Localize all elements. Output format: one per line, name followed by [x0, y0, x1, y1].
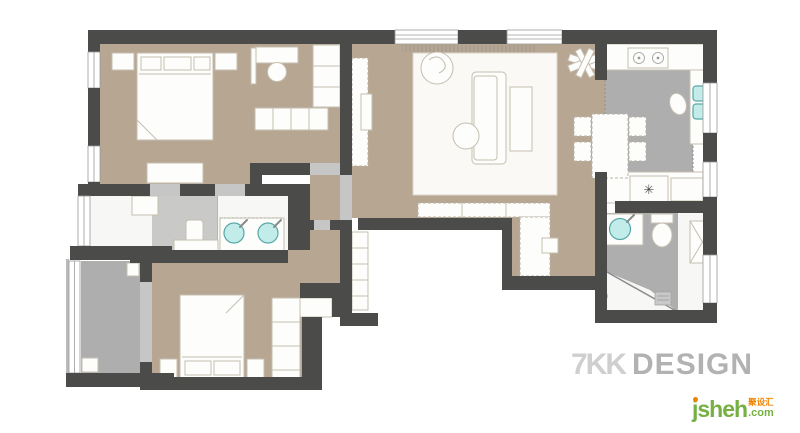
balcony-door-window — [140, 282, 152, 362]
watermark-word: DESIGN — [632, 348, 753, 381]
desk-chair — [268, 63, 287, 82]
wall-segment — [302, 317, 322, 377]
wall-segment — [595, 172, 607, 212]
wardrobe2-column — [272, 298, 300, 388]
wall-segment — [66, 373, 174, 387]
wall-segment — [250, 163, 262, 184]
balcony-floor — [81, 261, 140, 373]
wall-segment — [70, 246, 172, 260]
dresser — [147, 163, 203, 183]
door-opening — [215, 184, 245, 196]
wall-segment — [595, 212, 607, 310]
nightstand — [247, 359, 264, 378]
wall-segment — [288, 184, 310, 250]
wardrobe1-column — [313, 45, 340, 107]
curtain-hatch — [402, 45, 536, 52]
toilet-tank — [651, 214, 673, 223]
bed2-pillow — [214, 361, 240, 375]
door-opening — [310, 163, 340, 175]
study-desk — [174, 240, 218, 251]
wall-segment — [615, 201, 717, 213]
wall-segment — [358, 218, 512, 230]
burner-dot — [657, 57, 660, 60]
bath-mat — [655, 292, 671, 305]
balcony-corner-box — [127, 263, 139, 276]
wall-segment — [340, 220, 352, 230]
appliance-box — [671, 178, 703, 201]
burner-dot — [638, 57, 641, 60]
wall-segment — [703, 133, 717, 162]
wall-segment — [340, 163, 352, 175]
nightstand — [215, 53, 237, 70]
dining-chair — [574, 142, 591, 161]
wall-segment — [458, 30, 507, 44]
wall-segment — [502, 276, 602, 290]
wall-segment — [595, 310, 717, 323]
site-logo-cjk: 聚设汇 — [748, 398, 774, 407]
wall-segment — [310, 220, 314, 230]
wall-segment — [88, 88, 100, 146]
balcony-corner-box — [82, 358, 98, 372]
window — [507, 30, 562, 44]
toilet-bowl — [652, 223, 672, 247]
sofa-side-table — [510, 87, 532, 151]
site-logo-tld: .com — [748, 408, 774, 419]
watermark-brand: 7KK — [571, 348, 625, 381]
dining-chair — [629, 117, 646, 136]
door-opening — [340, 175, 352, 220]
bed1-pillow — [141, 57, 161, 70]
wardrobe2-top — [300, 298, 332, 317]
sectional-sofa-top — [418, 203, 550, 217]
wall-segment — [78, 184, 90, 196]
wall-segment — [300, 283, 351, 298]
wall-segment — [703, 30, 717, 83]
desk — [255, 47, 298, 63]
wall-segment — [330, 220, 340, 230]
bed1-pillow — [194, 57, 210, 70]
coffee-table — [453, 123, 479, 149]
closet-shelves — [352, 232, 368, 310]
wall-segment — [245, 184, 288, 196]
washing-machine-icon: ✳ — [644, 183, 655, 198]
radiator — [251, 48, 256, 84]
wall-segment — [603, 30, 717, 44]
wall-segment — [88, 30, 100, 52]
wall-segment — [180, 184, 215, 196]
nightstand — [112, 53, 134, 70]
bed2-pillow — [185, 361, 211, 375]
door-opening — [314, 220, 330, 230]
logo-dot-icon — [693, 397, 698, 402]
dining-chair — [574, 117, 591, 136]
site-logo-text: jsheh — [692, 396, 747, 422]
floor-plan-image: ✳ — [0, 0, 800, 433]
dining-table — [592, 114, 628, 178]
vanity-bathroom — [220, 218, 284, 252]
site-logo-name: jsheh — [692, 398, 747, 421]
stove — [628, 48, 668, 68]
balcony-outer-rail — [66, 259, 69, 375]
wall-segment — [340, 32, 352, 163]
study-cabinet — [132, 196, 158, 215]
wall-segment — [595, 32, 607, 80]
site-logo-right: 聚设汇 .com — [748, 398, 774, 419]
designer-watermark: 7KKDESIGN — [571, 350, 753, 380]
site-logo: jsheh 聚设汇 .com — [692, 398, 774, 421]
tv — [361, 94, 372, 130]
nook-side-table — [542, 238, 558, 253]
bed1-pillow — [164, 57, 191, 70]
wall-segment — [332, 298, 352, 317]
sofa-seat — [474, 76, 497, 160]
door-opening — [150, 184, 180, 196]
dining-chair — [629, 142, 646, 161]
window — [395, 30, 458, 44]
